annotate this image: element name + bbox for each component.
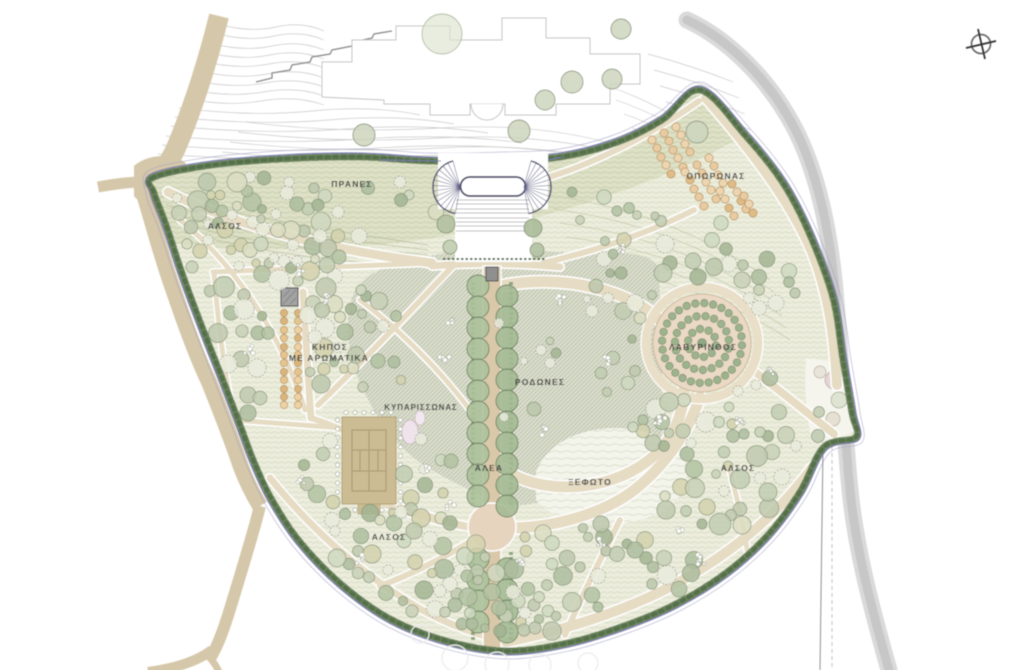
svg-text:ΟΠΩΡΩΝΑΣ: ΟΠΩΡΩΝΑΣ [686, 171, 745, 181]
svg-text:ΑΛΣΟΣ: ΑΛΣΟΣ [208, 221, 243, 231]
svg-text:ΜΕ ΑΡΩΜΑΤΙΚΑ: ΜΕ ΑΡΩΜΑΤΙΚΑ [289, 353, 369, 363]
svg-text:ΚΗΠΟΣ: ΚΗΠΟΣ [312, 342, 348, 352]
svg-text:ΡΟΔΩΝΕΣ: ΡΟΔΩΝΕΣ [515, 377, 565, 387]
svg-text:ΑΛΣΟΣ: ΑΛΣΟΣ [372, 532, 407, 542]
svg-text:ΑΛΣΟΣ: ΑΛΣΟΣ [721, 463, 756, 473]
svg-text:ΚΥΠΑΡΙΣΣΩΝΑΣ: ΚΥΠΑΡΙΣΣΩΝΑΣ [384, 403, 457, 412]
svg-text:ΛΑΒΥΡΙΝΘΟΣ: ΛΑΒΥΡΙΝΘΟΣ [669, 342, 737, 352]
svg-text:ΞΕΦΩΤΟ: ΞΕΦΩΤΟ [568, 477, 612, 487]
svg-text:ΠΡΑΝΕΣ: ΠΡΑΝΕΣ [331, 179, 372, 189]
svg-text:ΑΛΕΑ: ΑΛΕΑ [475, 463, 503, 473]
